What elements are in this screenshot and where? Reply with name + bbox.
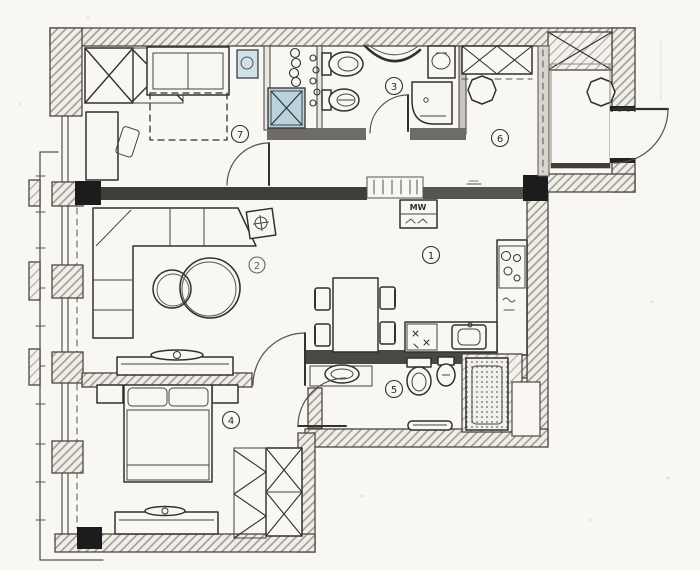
chair-icon bbox=[315, 288, 330, 310]
balcony-divider bbox=[29, 180, 40, 206]
balcony-divider bbox=[29, 349, 40, 385]
pouf-icon bbox=[468, 76, 496, 104]
room-number-text: 5 bbox=[391, 385, 397, 396]
wall-entrance-bottom bbox=[540, 174, 635, 192]
nightstand-icon bbox=[97, 385, 123, 403]
hall-closet-icon bbox=[462, 46, 532, 79]
nightstand-icon bbox=[212, 385, 238, 403]
microwave-label: MW bbox=[410, 203, 427, 212]
wall-pillar-black-bottom bbox=[77, 527, 102, 549]
dining-table-icon bbox=[333, 278, 378, 352]
pouf-icon bbox=[587, 78, 615, 106]
room-label-6: 6 bbox=[492, 130, 509, 147]
room-number-text: 6 bbox=[497, 134, 503, 145]
room-label-2: 2 bbox=[249, 257, 265, 273]
bath3-bottom-wall-left bbox=[267, 128, 366, 140]
floor-plan-page: MW bbox=[0, 0, 700, 570]
sink-icon bbox=[428, 46, 455, 78]
side-table-icon bbox=[246, 208, 276, 238]
middle-wall-dark-2 bbox=[423, 187, 523, 199]
room-label-4: 4 bbox=[223, 412, 240, 429]
wall-pillar-black bbox=[523, 175, 548, 201]
wall-pillar-black bbox=[75, 181, 101, 205]
hall-pillar-strip bbox=[538, 46, 549, 176]
doorway-sill bbox=[367, 177, 423, 198]
room-number-text: 1 bbox=[428, 251, 434, 262]
kitchen-counter-bottom bbox=[405, 322, 497, 352]
room-number-text: 4 bbox=[228, 416, 234, 427]
chair-icon bbox=[315, 324, 330, 346]
kitchen-sink-icon bbox=[452, 323, 486, 349]
balcony-divider bbox=[29, 262, 40, 300]
room-number-text: 3 bbox=[391, 82, 397, 93]
window-pillar bbox=[52, 352, 83, 383]
room-label-7: 7 bbox=[232, 126, 249, 143]
window-pillar bbox=[52, 265, 83, 298]
entry-step bbox=[551, 163, 610, 168]
room-number-text: 2 bbox=[254, 261, 260, 272]
wall-niche bbox=[512, 382, 540, 436]
wall-top bbox=[50, 28, 635, 46]
wardrobe-icon bbox=[266, 448, 302, 536]
microwave-unit-icon: MW bbox=[400, 200, 437, 228]
bidet-icon bbox=[322, 89, 359, 111]
towel-rail-icon bbox=[408, 421, 452, 430]
bed-double-icon bbox=[124, 385, 212, 482]
wall-frame-icon bbox=[237, 50, 258, 78]
washing-machine-icon bbox=[268, 88, 305, 128]
room-label-1: 1 bbox=[423, 247, 440, 264]
corner-tub-icon bbox=[412, 82, 452, 124]
room-label-3: 3 bbox=[386, 78, 403, 95]
floor-plan-drawing: MW bbox=[0, 0, 700, 570]
window-pillar bbox=[52, 441, 83, 473]
chair-icon bbox=[380, 287, 395, 309]
toilet-icon bbox=[407, 358, 431, 395]
kitchen-counter-right bbox=[497, 240, 527, 355]
chair-icon bbox=[380, 322, 395, 344]
wall-left-upper bbox=[50, 28, 82, 116]
bath3-bottom-wall-right bbox=[410, 128, 466, 140]
toilet-icon bbox=[322, 52, 363, 76]
room-number-text: 7 bbox=[237, 130, 243, 141]
bidet-icon bbox=[437, 357, 455, 386]
room-label-5: 5 bbox=[386, 381, 403, 398]
middle-wall-dark bbox=[101, 187, 367, 200]
